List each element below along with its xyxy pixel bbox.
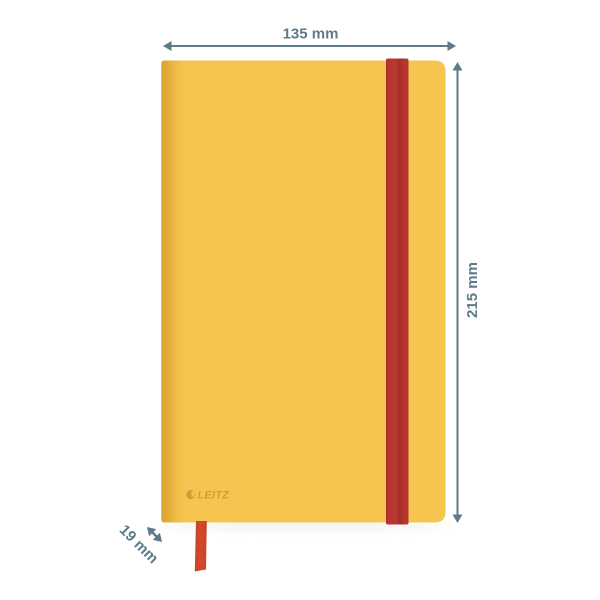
svg-text:LEITZ: LEITZ — [198, 490, 231, 502]
svg-text:215 mm: 215 mm — [464, 262, 481, 318]
svg-text:135 mm: 135 mm — [283, 26, 339, 43]
